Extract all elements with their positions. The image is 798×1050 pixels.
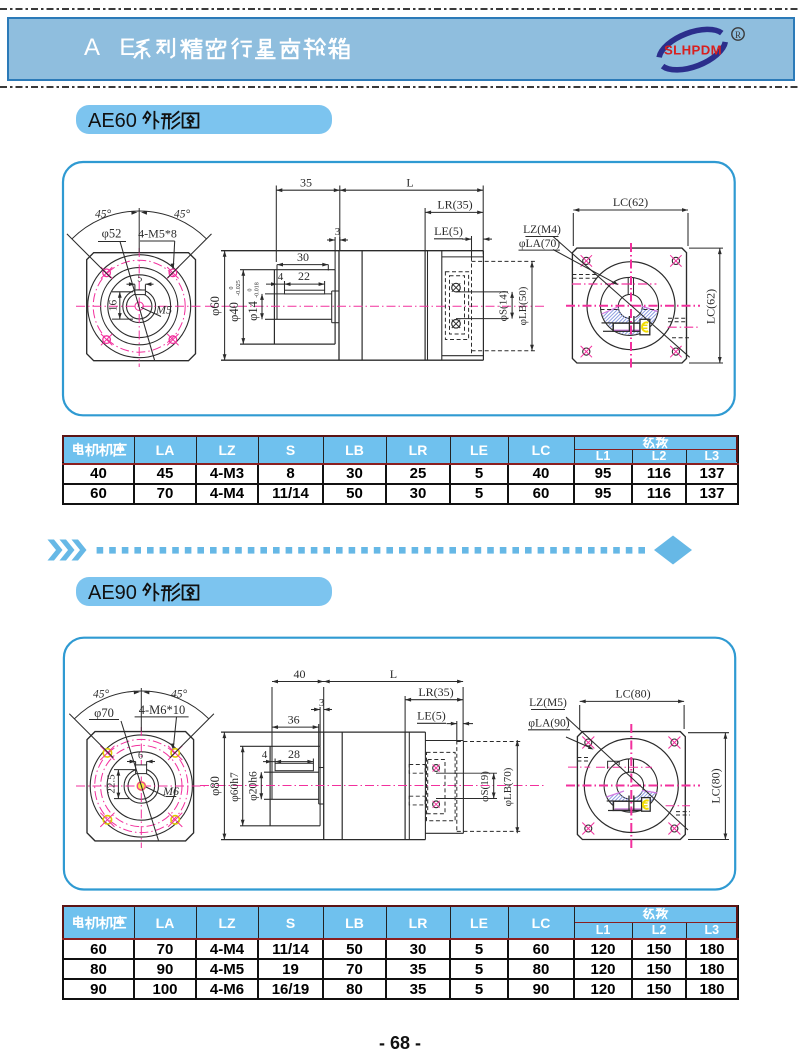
svg-text:4: 4 (262, 749, 268, 761)
svg-text:LC(80): LC(80) (615, 687, 650, 701)
svg-text:LE(5): LE(5) (417, 709, 446, 723)
svg-text:φS(19): φS(19) (479, 771, 491, 802)
svg-text:φ70: φ70 (94, 706, 114, 720)
svg-text:4-M6*10: 4-M6*10 (139, 703, 186, 717)
svg-text:LR(35): LR(35) (437, 198, 472, 212)
svg-text:φLA(90): φLA(90) (528, 718, 569, 730)
svg-text:LR(35): LR(35) (418, 685, 453, 699)
svg-text:LZ(M5): LZ(M5) (529, 697, 567, 709)
svg-text:0: 0 (229, 287, 235, 290)
svg-text:4-M5*8: 4-M5*8 (138, 227, 177, 241)
svg-text:M5: M5 (155, 303, 172, 317)
svg-text:22: 22 (298, 269, 310, 283)
svg-text:-0.018: -0.018 (255, 282, 261, 298)
svg-text:LE(5): LE(5) (434, 224, 463, 238)
svg-text:22.5: 22.5 (106, 774, 118, 794)
svg-text:6: 6 (138, 751, 143, 762)
svg-text:30: 30 (297, 250, 309, 264)
svg-text:40: 40 (294, 667, 306, 681)
svg-text:45°: 45° (171, 689, 188, 701)
svg-text:5: 5 (137, 274, 142, 285)
svg-text:45°: 45° (174, 209, 191, 221)
svg-text:φ14: φ14 (246, 300, 260, 320)
svg-text:φ52: φ52 (102, 227, 122, 241)
svg-text:φ60: φ60 (208, 296, 222, 316)
svg-text:LZ(M4): LZ(M4) (523, 224, 561, 236)
svg-text:φLA(70): φLA(70) (519, 238, 560, 250)
svg-text:φ80: φ80 (208, 776, 222, 796)
svg-text:0: 0 (248, 289, 254, 292)
svg-text:45°: 45° (93, 689, 110, 701)
svg-text:28: 28 (288, 747, 300, 761)
svg-text:35: 35 (300, 176, 312, 190)
svg-text:φ40: φ40 (227, 302, 241, 322)
svg-text:4: 4 (278, 271, 284, 283)
svg-text:LC(62): LC(62) (613, 195, 648, 209)
svg-text:-0.025: -0.025 (236, 280, 242, 296)
svg-text:φLB(70): φLB(70) (502, 767, 514, 806)
svg-text:M6: M6 (162, 784, 179, 798)
svg-text:45°: 45° (95, 209, 112, 221)
svg-text:L: L (390, 667, 397, 681)
svg-text:L: L (406, 176, 413, 190)
svg-text:φS(14): φS(14) (498, 290, 510, 321)
svg-text:16: 16 (108, 300, 120, 312)
svg-text:φLB(50): φLB(50) (517, 286, 529, 325)
svg-text:φ60h7: φ60h7 (229, 772, 241, 802)
svg-text:φ20h6: φ20h6 (248, 771, 260, 801)
svg-text:3: 3 (335, 226, 341, 238)
svg-text:LC(80): LC(80) (709, 768, 723, 803)
svg-text:LC(62): LC(62) (704, 289, 718, 324)
svg-text:36: 36 (288, 713, 300, 727)
